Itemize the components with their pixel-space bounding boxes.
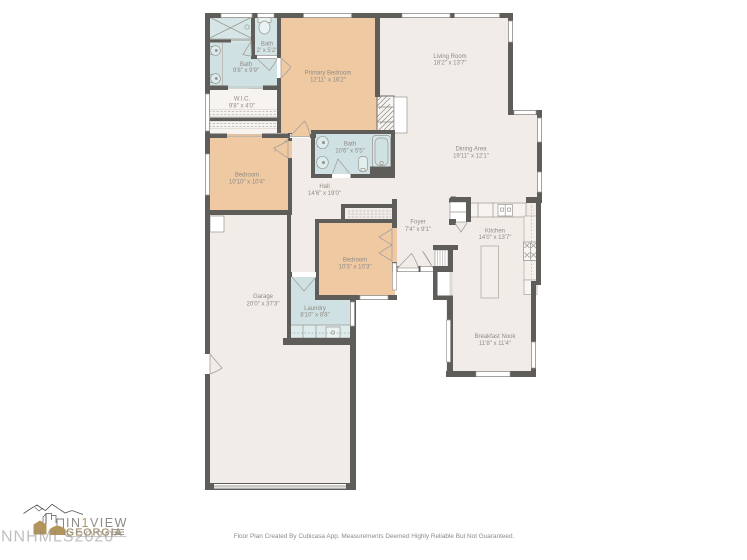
svg-text:8'10" x 8'8": 8'10" x 8'8" [300,313,330,319]
svg-text:Floor Plan Created By Cubicasa: Floor Plan Created By Cubicasa App. Meas… [234,533,515,540]
svg-text:2' x 5'2": 2' x 5'2" [257,48,278,54]
svg-text:Breakfast Nook: Breakfast Nook [474,334,516,340]
svg-text:Bedroom: Bedroom [343,258,367,264]
svg-text:20'0" x 37'3": 20'0" x 37'3" [247,301,280,307]
svg-text:14'0" x 13'7": 14'0" x 13'7" [479,235,512,241]
svg-text:10'3" x 10'3": 10'3" x 10'3" [339,265,372,271]
svg-text:Kitchen: Kitchen [485,228,505,234]
svg-text:19'11" x 12'1": 19'11" x 12'1" [453,153,489,159]
svg-text:18'2" x 13'7": 18'2" x 13'7" [434,61,467,67]
svg-text:Bath: Bath [344,142,356,148]
svg-text:10'10" x 10'4": 10'10" x 10'4" [229,180,265,186]
svg-text:14'6" x 19'0": 14'6" x 19'0" [308,191,341,197]
svg-text:12'11" x 16'2": 12'11" x 16'2" [310,77,346,83]
svg-text:Foyer: Foyer [410,220,425,226]
svg-text:Laundry: Laundry [304,306,326,312]
svg-text:9'8" x 9'9": 9'8" x 9'9" [233,68,259,74]
svg-text:9'8" x 4'0": 9'8" x 4'0" [229,103,255,109]
svg-text:Living Room: Living Room [433,54,466,60]
svg-text:Bath: Bath [261,42,273,48]
svg-text:11'8" x 11'4": 11'8" x 11'4" [479,341,511,347]
svg-text:7'4" x 9'1": 7'4" x 9'1" [405,227,431,233]
svg-text:NNHMLS2020: NNHMLS2020 [1,529,114,546]
svg-text:Hall: Hall [319,184,329,190]
svg-text:Garage: Garage [253,294,274,300]
svg-text:Bedroom: Bedroom [235,173,259,179]
svg-text:Dining Area: Dining Area [455,147,487,153]
svg-text:Primary Bedroom: Primary Bedroom [305,71,352,77]
svg-text:W.I.C.: W.I.C. [234,97,251,103]
svg-text:10'6" x 5'5": 10'6" x 5'5" [335,149,365,155]
